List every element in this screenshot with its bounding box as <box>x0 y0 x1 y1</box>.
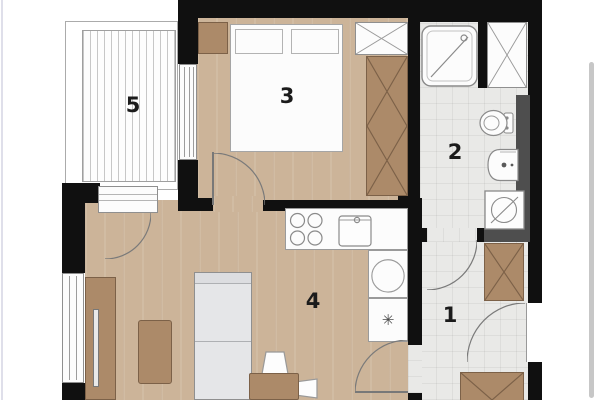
wall-living-hall <box>408 198 422 345</box>
window-mullion <box>69 276 70 380</box>
window-mullion <box>76 276 77 380</box>
dining-table <box>249 373 299 400</box>
toilet <box>478 108 516 138</box>
x-mark-glyph <box>488 23 526 87</box>
window-mullion <box>189 67 190 157</box>
door-arc-glyph <box>105 213 151 259</box>
floor-plan: ✳ <box>0 0 600 400</box>
door-arc-glyph <box>427 240 477 290</box>
pillow <box>291 29 339 54</box>
washing-machine <box>484 190 525 230</box>
entrance-door-opening <box>526 303 542 362</box>
fridge: ✳ <box>368 298 408 342</box>
toilet-glyph <box>478 108 516 138</box>
bathroom-door-swing <box>427 240 477 290</box>
bathroom-sink <box>487 148 519 182</box>
wall-right-lower <box>528 362 542 400</box>
x-mark-glyph <box>356 23 407 54</box>
kitchen-counter-side <box>368 250 408 298</box>
wall-bath-hall-left <box>408 228 427 242</box>
dining-chair <box>260 351 290 375</box>
kitchen-sink-glyph <box>337 212 373 248</box>
tv <box>93 309 99 387</box>
room-label-bathroom: 2 <box>444 142 466 163</box>
pillow <box>235 29 283 54</box>
stove-burners-glyph <box>287 210 325 248</box>
wall-left-corner <box>62 183 100 203</box>
wall-left-mid <box>62 203 85 273</box>
door-frame-line <box>99 194 157 195</box>
living-room-window <box>62 273 84 383</box>
room-label-living: 4 <box>302 291 324 312</box>
tv-cabinet <box>85 277 116 400</box>
shower <box>421 25 478 87</box>
door-arc-glyph <box>213 153 265 205</box>
sink-glyph <box>487 148 519 182</box>
hall-door-threshold <box>408 345 422 393</box>
door-frame-line <box>99 200 157 201</box>
balcony-door-frame <box>98 186 158 213</box>
living-hall-door-leaf <box>355 391 408 393</box>
coffee-table <box>138 320 172 384</box>
sofa-cushion-divider <box>195 341 251 342</box>
wall-top-bedroom <box>178 0 420 18</box>
cabinet-x-glyph <box>461 373 523 400</box>
wall-bathroom-inner-bottom <box>484 228 530 242</box>
door-arc-glyph <box>467 303 525 362</box>
ventilation-shaft-right <box>487 22 527 88</box>
window-mullion <box>193 67 194 157</box>
nightstand <box>198 22 228 54</box>
wall-top-bathroom <box>420 0 542 22</box>
snowflake-icon: ✳ <box>382 313 395 328</box>
wall-balcony-bedroom-upper <box>178 18 198 64</box>
chair-glyph <box>260 351 290 375</box>
wall-balcony-bedroom-lower <box>178 160 198 198</box>
wall-living-hall-bottom <box>408 393 422 400</box>
room-label-hallway: 1 <box>439 305 461 326</box>
hallway-cabinet <box>460 372 524 400</box>
bedroom-wardrobe <box>366 56 408 196</box>
shower-glyph <box>421 25 478 87</box>
sofa-backrest <box>195 273 251 284</box>
room-label-balcony: 5 <box>122 95 144 116</box>
bedroom-door-swing <box>213 153 265 205</box>
room-label-bedroom: 3 <box>276 86 298 107</box>
scrollbar-thumb[interactable] <box>589 62 594 398</box>
wall-bedroom-bathroom <box>408 18 420 198</box>
entrance-door-swing <box>467 303 525 362</box>
wardrobe-x-glyph <box>367 57 407 195</box>
door-arc-glyph <box>355 340 408 393</box>
ventilation-shaft-left <box>355 22 408 55</box>
balcony-door-swing <box>105 213 151 259</box>
window-mullion <box>184 67 185 157</box>
shoe-cabinet <box>484 243 524 301</box>
cabinet-x-glyph <box>485 244 523 300</box>
wall-right-upper <box>528 22 542 303</box>
living-hall-door-swing <box>355 340 408 393</box>
bedroom-balcony-window <box>179 64 197 160</box>
sofa <box>194 272 252 400</box>
left-page-edge <box>1 0 3 400</box>
wall-left-bottom <box>62 383 85 400</box>
kitchen-sink <box>337 212 373 248</box>
wall-bedroom-living-left <box>178 198 213 211</box>
washing-machine-glyph <box>484 190 525 230</box>
wall-shower-shaft-gap <box>478 22 487 88</box>
round-basin-glyph <box>369 251 407 297</box>
stove <box>287 210 325 248</box>
